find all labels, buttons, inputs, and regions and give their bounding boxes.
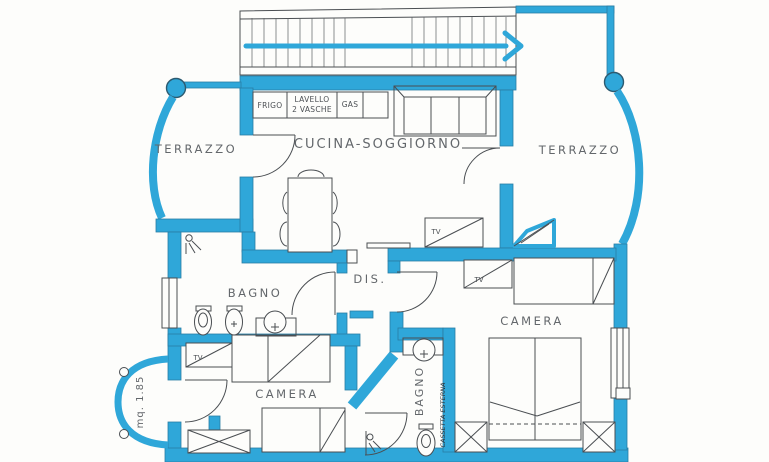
shower-icon-bagno1 [186,235,201,254]
door-terrace-left-kitchen [253,135,295,177]
small-balcony: mq. 1.85 [118,359,168,445]
single-bed-camera2 [514,258,614,304]
tv-label-soggiorno: TV [430,228,440,236]
bidet-icon [226,306,243,335]
stair-direction-arrow-icon [246,33,521,59]
label-bagno2: BAGNO [413,366,426,416]
wardrobe-camera2-left [455,422,487,452]
terrace-steps [514,220,554,246]
camera2-furniture [455,258,615,452]
label-dis: DIS. [353,272,386,286]
tv-label-camera2: TV [473,276,483,284]
tv-label-camera1: TV [192,354,202,362]
window-sill-detail [616,388,630,399]
label-terrazzo-right: TERRAZZO [538,143,621,157]
sink-label-line2: 2 VASCHE [292,105,332,114]
note-cassetta-esterna: CASSETTA ESTERNA [439,382,447,447]
washbasin-icon-bagno2 [403,338,443,361]
terrace-post-left [167,79,186,98]
door-dis-bagno1 [292,272,335,315]
gas-label: GAS [342,100,359,109]
hall-shelf [367,243,410,248]
wardrobe-camera1 [188,430,250,453]
tv-stand-soggiorno: TV [425,218,483,247]
washbasin-icon-bagno1 [256,311,296,336]
toilet-icon-bagno2 [417,424,435,456]
label-camera1: CAMERA [255,387,318,401]
double-bed-camera2 [489,338,581,440]
bagno2-fixtures [366,338,443,456]
fridge-label: FRIGO [258,101,283,110]
door-dis-camera2 [397,272,437,312]
window-bagno1-west [162,278,177,328]
sink-label-line1: LAVELLO [295,95,330,104]
label-bagno1: BAGNO [228,286,283,300]
door-camera1-balcony [185,380,227,422]
label-cucina-soggiorno: CUCINA-SOGGIORNO [294,137,462,152]
single-bed-camera1-bottom [262,408,345,452]
wardrobe-camera2-right [583,422,615,452]
single-bed-camera1-top [232,335,330,382]
door-soggiorno-terrace-right [462,148,500,184]
stair-steps [252,17,506,67]
kitchen-counter: FRIGO LAVELLO 2 VASCHE GAS [253,92,388,118]
floor-plan-drawing: mq. 1.85 FRIGO LAVELLO 2 VASCHE GAS [0,0,769,462]
label-terrazzo-left: TERRAZZO [154,142,237,156]
terrace-post-right [605,73,624,92]
label-camera2: CAMERA [500,314,563,328]
dining-table [280,170,340,252]
staircase [240,7,521,75]
sofa [394,86,496,136]
toilet-icon [195,306,212,335]
balcony-area-label: mq. 1.85 [135,376,146,429]
floor-plan-page: mq. 1.85 FRIGO LAVELLO 2 VASCHE GAS [0,0,769,462]
tv-stand-camera2 [464,260,512,288]
